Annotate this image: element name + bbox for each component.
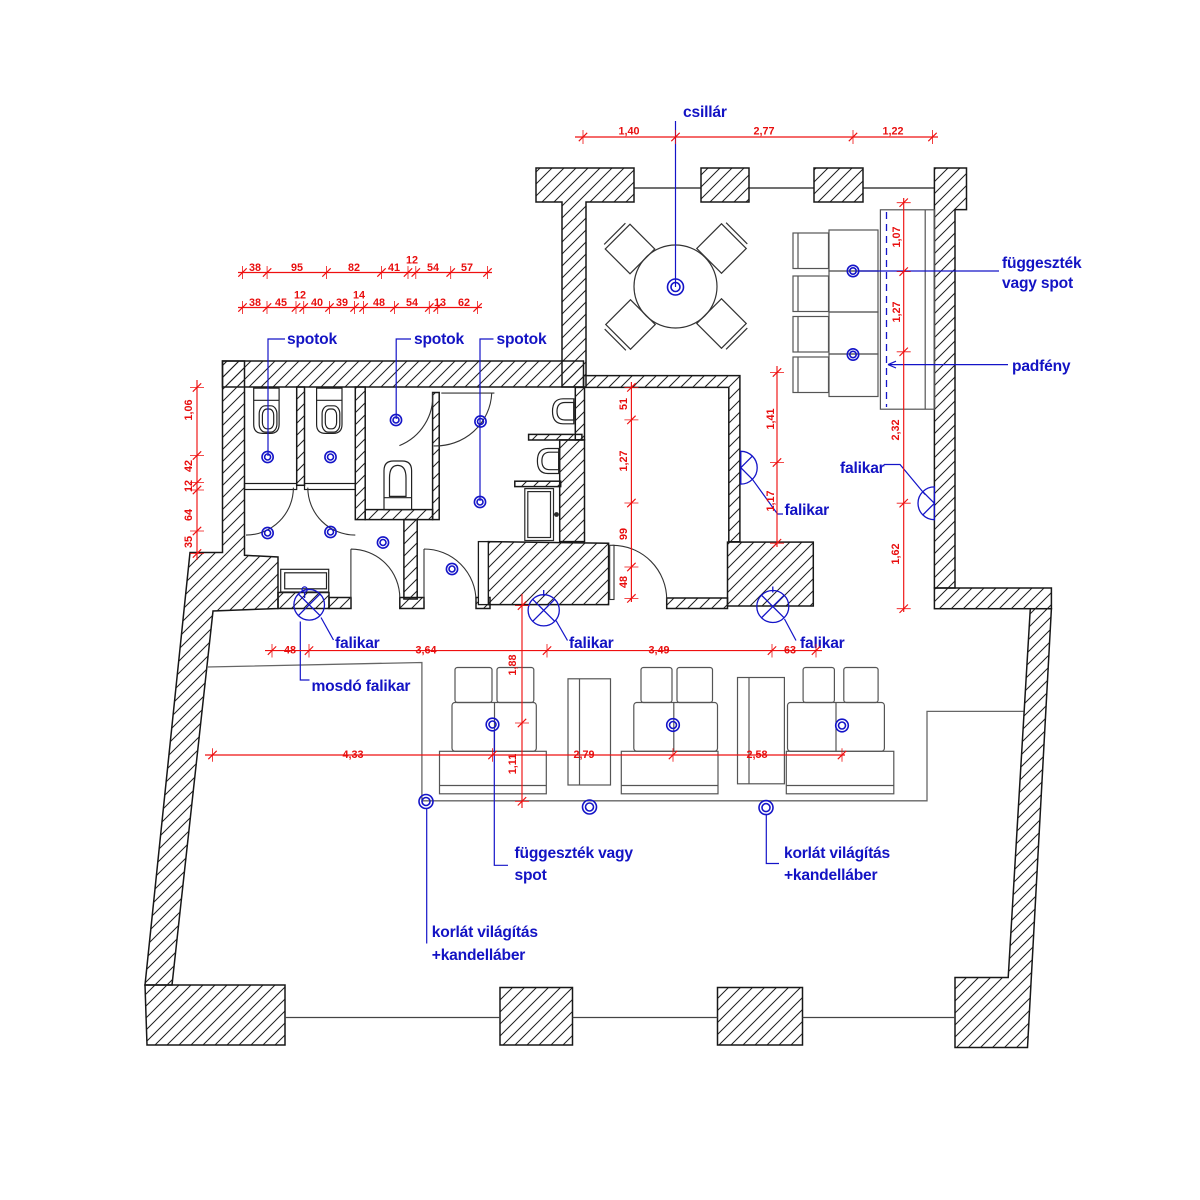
svg-text:+kandelláber: +kandelláber	[784, 867, 878, 884]
svg-text:1,62: 1,62	[890, 543, 902, 564]
svg-text:54: 54	[427, 262, 439, 274]
svg-text:14: 14	[353, 290, 365, 302]
svg-text:falikar: falikar	[785, 502, 830, 519]
svg-text:1,40: 1,40	[618, 126, 639, 138]
svg-text:45: 45	[275, 297, 287, 309]
svg-text:39: 39	[336, 297, 348, 309]
svg-text:62: 62	[458, 297, 470, 309]
svg-text:függeszték: függeszték	[1002, 255, 1082, 272]
svg-text:1,27: 1,27	[618, 450, 630, 471]
svg-text:12: 12	[406, 255, 418, 267]
svg-text:57: 57	[461, 262, 473, 274]
svg-text:42: 42	[183, 460, 195, 472]
svg-text:1,41: 1,41	[765, 408, 777, 429]
svg-text:1,11: 1,11	[507, 754, 519, 774]
svg-text:12: 12	[294, 290, 306, 302]
svg-text:padfény: padfény	[1012, 358, 1071, 375]
svg-text:48: 48	[284, 645, 296, 657]
svg-text:+kandelláber: +kandelláber	[432, 947, 526, 964]
svg-text:korlát világítás: korlát világítás	[432, 924, 539, 941]
svg-text:95: 95	[291, 262, 303, 274]
svg-text:3,49: 3,49	[648, 645, 669, 657]
svg-text:falikar: falikar	[840, 460, 885, 477]
svg-text:40: 40	[311, 297, 323, 309]
svg-text:38: 38	[249, 297, 261, 309]
svg-text:82: 82	[348, 262, 360, 274]
svg-text:1,06: 1,06	[183, 399, 195, 420]
svg-text:spotok: spotok	[287, 331, 337, 348]
svg-text:függeszték vagy: függeszték vagy	[515, 845, 634, 862]
svg-text:2,77: 2,77	[753, 126, 774, 138]
svg-text:1,17: 1,17	[765, 490, 777, 511]
svg-text:3,64: 3,64	[415, 645, 436, 657]
svg-text:64: 64	[183, 509, 195, 521]
svg-text:1,07: 1,07	[891, 226, 903, 247]
svg-text:38: 38	[249, 262, 261, 274]
svg-text:41: 41	[388, 262, 400, 274]
svg-text:falikar: falikar	[335, 635, 380, 652]
svg-text:12: 12	[183, 480, 195, 492]
svg-text:spot: spot	[515, 867, 547, 884]
svg-text:4,33: 4,33	[342, 749, 363, 761]
svg-text:48: 48	[373, 297, 385, 309]
svg-text:spotok: spotok	[414, 331, 464, 348]
svg-text:13: 13	[434, 297, 446, 309]
svg-text:1,88: 1,88	[507, 654, 519, 675]
svg-text:1,27: 1,27	[891, 301, 903, 322]
svg-text:99: 99	[618, 528, 630, 540]
svg-text:1,22: 1,22	[882, 126, 903, 138]
svg-text:63: 63	[784, 645, 796, 657]
svg-text:falikar: falikar	[569, 635, 614, 652]
svg-text:35: 35	[183, 536, 195, 548]
svg-text:2,79: 2,79	[573, 749, 594, 761]
svg-text:48: 48	[618, 576, 630, 588]
svg-text:2,58: 2,58	[746, 749, 767, 761]
svg-text:korlát világítás: korlát világítás	[784, 845, 891, 862]
svg-text:2,32: 2,32	[890, 419, 902, 440]
svg-text:mosdó falikar: mosdó falikar	[312, 678, 411, 695]
svg-text:falikar: falikar	[800, 635, 845, 652]
svg-text:spotok: spotok	[497, 331, 547, 348]
svg-text:vagy spot: vagy spot	[1002, 275, 1073, 292]
svg-text:51: 51	[618, 398, 630, 410]
svg-text:54: 54	[406, 297, 418, 309]
svg-text:csillár: csillár	[683, 104, 727, 121]
